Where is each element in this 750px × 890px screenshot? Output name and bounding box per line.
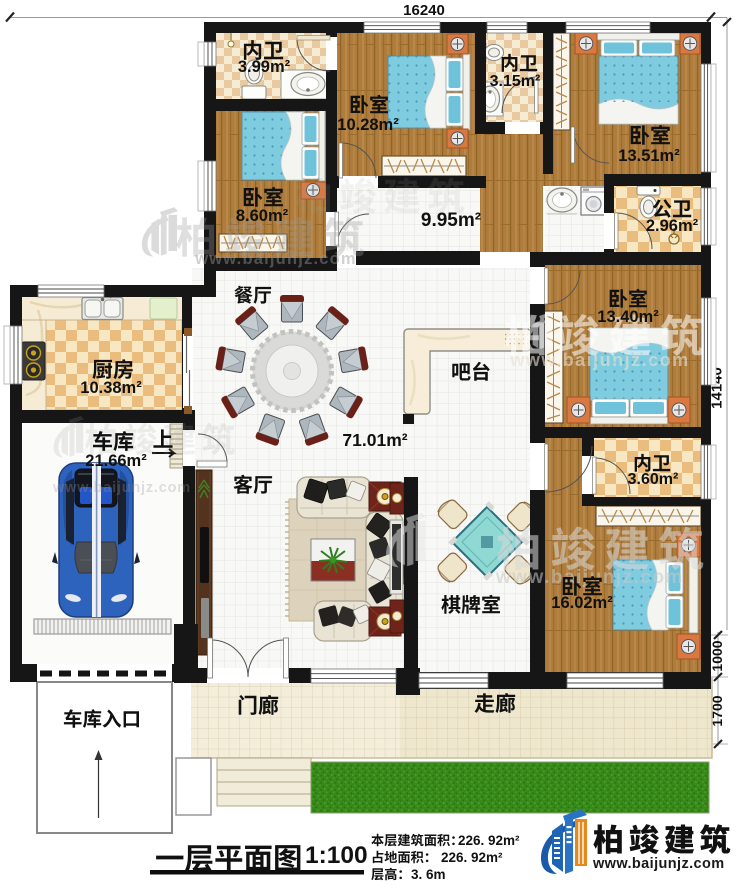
svg-text:www.baijunjz.com: www.baijunjz.com — [194, 250, 357, 268]
svg-text:9.95m²: 9.95m² — [421, 210, 481, 231]
svg-text:13.51m²: 13.51m² — [618, 147, 680, 165]
svg-text:1000: 1000 — [709, 640, 725, 671]
svg-text:10.38m²: 10.38m² — [80, 379, 142, 397]
svg-text:www.baijunjz.com: www.baijunjz.com — [52, 480, 191, 496]
svg-text:1:100: 1:100 — [305, 842, 368, 869]
svg-text:3. 6m: 3. 6m — [411, 867, 446, 882]
svg-text:16240: 16240 — [403, 2, 445, 19]
svg-text:10.28m²: 10.28m² — [337, 116, 399, 134]
svg-text:8.60m²: 8.60m² — [236, 207, 289, 225]
svg-text:3.60m²: 3.60m² — [628, 471, 679, 488]
svg-text:www.baijunjz.com: www.baijunjz.com — [509, 350, 689, 370]
svg-text:2.96m²: 2.96m² — [646, 217, 699, 235]
svg-text:3.99m²: 3.99m² — [238, 58, 291, 76]
svg-text:226. 92m²: 226. 92m² — [458, 833, 520, 848]
svg-text:www.baijunjz.com: www.baijunjz.com — [592, 856, 725, 872]
svg-text:71.01m²: 71.01m² — [342, 430, 407, 450]
svg-text:13.40m²: 13.40m² — [597, 308, 659, 326]
svg-text:3.15m²: 3.15m² — [490, 73, 541, 90]
svg-text:226. 92m²: 226. 92m² — [441, 850, 503, 865]
svg-text:16.02m²: 16.02m² — [551, 594, 613, 612]
svg-text:21.66m²: 21.66m² — [85, 452, 147, 470]
